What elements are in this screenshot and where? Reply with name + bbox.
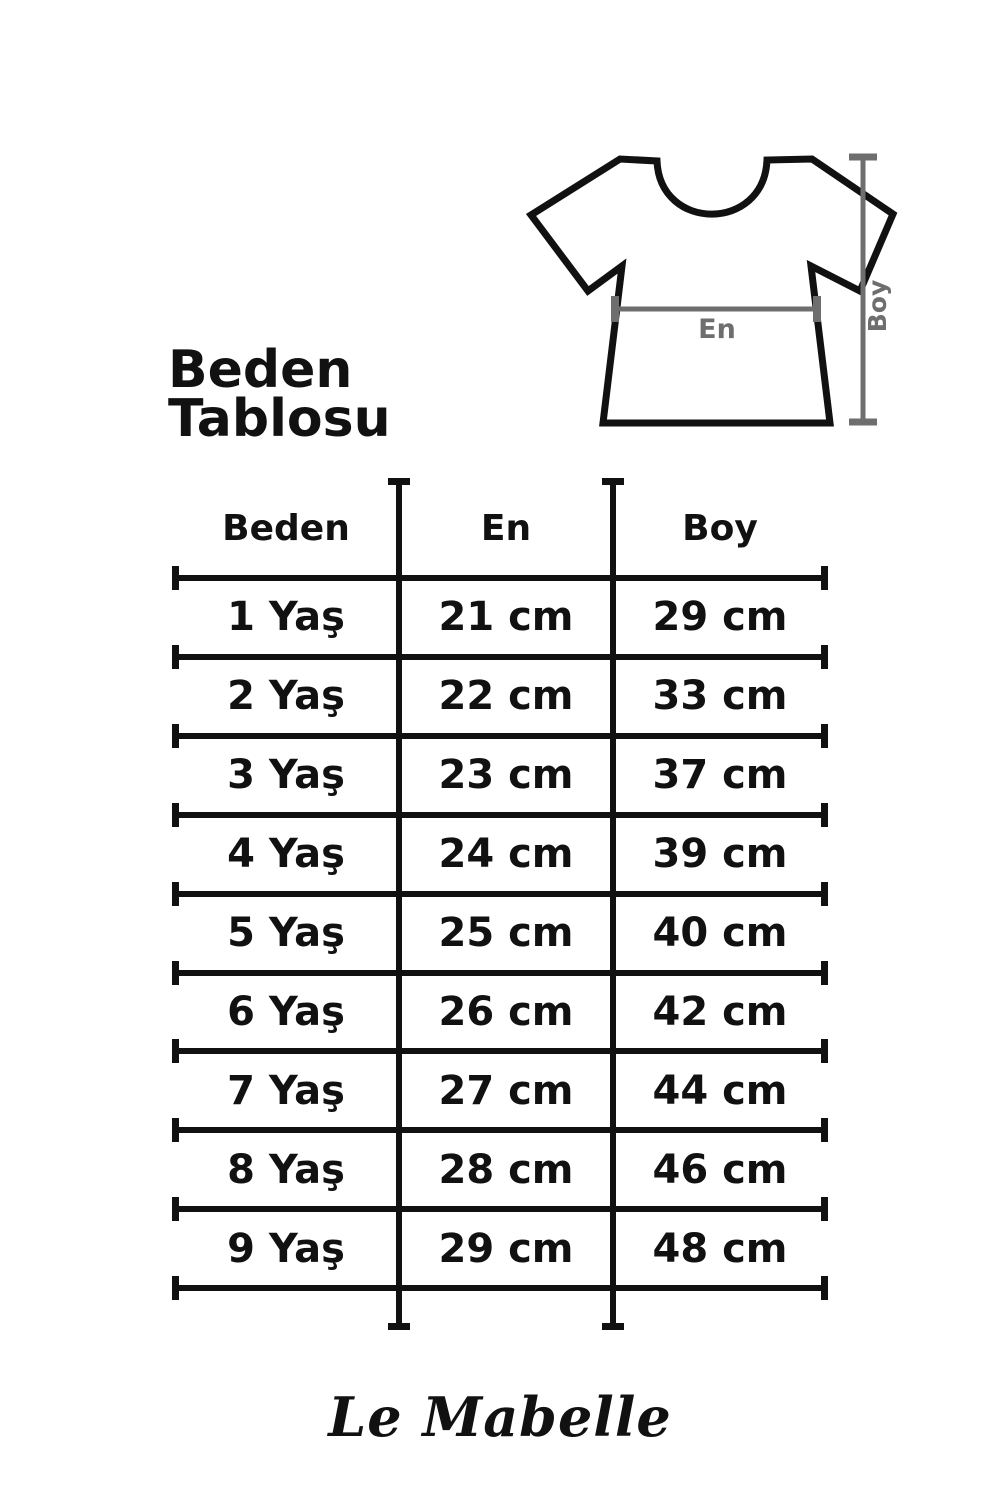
table-horizontal-rule — [173, 1048, 827, 1054]
table-header-beden: Beden — [173, 478, 399, 578]
width-cell: 22 cm — [399, 657, 613, 736]
table-row: 4 Yaş24 cm39 cm — [173, 815, 827, 894]
height-cell: 42 cm — [613, 972, 827, 1051]
table-horizontal-rule — [173, 1285, 827, 1291]
width-measure-label: En — [698, 314, 736, 345]
table-horizontal-rule — [173, 1127, 827, 1133]
table-horizontal-rule — [173, 575, 827, 581]
page-title: Beden Tablosu — [168, 346, 391, 444]
height-cell: 44 cm — [613, 1051, 827, 1130]
table-row: 3 Yaş23 cm37 cm — [173, 736, 827, 815]
height-measure-label: Boy — [863, 280, 892, 333]
size-cell: 4 Yaş — [173, 815, 399, 894]
tshirt-diagram: En Boy — [500, 130, 920, 450]
width-cell: 29 cm — [399, 1209, 613, 1288]
height-cell: 46 cm — [613, 1130, 827, 1209]
height-cell: 40 cm — [613, 894, 827, 973]
table-row: 2 Yaş22 cm33 cm — [173, 657, 827, 736]
size-chart-page: En Boy Beden Tablosu Beden En Boy 1 Yaş2… — [0, 0, 1000, 1500]
height-cell: 37 cm — [613, 736, 827, 815]
width-cell: 27 cm — [399, 1051, 613, 1130]
width-cell: 26 cm — [399, 972, 613, 1051]
size-table: Beden En Boy 1 Yaş21 cm29 cm2 Yaş22 cm33… — [173, 478, 827, 1338]
size-cell: 1 Yaş — [173, 578, 399, 657]
table-horizontal-rule — [173, 733, 827, 739]
table-horizontal-rule — [173, 812, 827, 818]
table-row: 6 Yaş26 cm42 cm — [173, 972, 827, 1051]
height-cell: 33 cm — [613, 657, 827, 736]
size-cell: 5 Yaş — [173, 894, 399, 973]
brand-logo: Le Mabelle — [0, 1385, 1000, 1449]
height-cell: 48 cm — [613, 1209, 827, 1288]
width-cell: 23 cm — [399, 736, 613, 815]
table-horizontal-rule — [173, 1206, 827, 1212]
table-body: 1 Yaş21 cm29 cm2 Yaş22 cm33 cm3 Yaş23 cm… — [173, 578, 827, 1288]
table-header-row: Beden En Boy — [173, 478, 827, 578]
width-cell: 24 cm — [399, 815, 613, 894]
width-cell: 28 cm — [399, 1130, 613, 1209]
size-cell: 9 Yaş — [173, 1209, 399, 1288]
table-horizontal-rule — [173, 654, 827, 660]
table-row: 9 Yaş29 cm48 cm — [173, 1209, 827, 1288]
table-row: 1 Yaş21 cm29 cm — [173, 578, 827, 657]
table-rows: Beden En Boy 1 Yaş21 cm29 cm2 Yaş22 cm33… — [173, 478, 827, 1288]
width-cell: 25 cm — [399, 894, 613, 973]
width-cell: 21 cm — [399, 578, 613, 657]
table-row: 5 Yaş25 cm40 cm — [173, 894, 827, 973]
table-row: 7 Yaş27 cm44 cm — [173, 1051, 827, 1130]
table-row: 8 Yaş28 cm46 cm — [173, 1130, 827, 1209]
table-horizontal-rule — [173, 970, 827, 976]
size-cell: 7 Yaş — [173, 1051, 399, 1130]
page-title-line2: Tablosu — [168, 389, 391, 449]
size-cell: 2 Yaş — [173, 657, 399, 736]
size-cell: 8 Yaş — [173, 1130, 399, 1209]
table-header-en: En — [399, 478, 613, 578]
height-cell: 29 cm — [613, 578, 827, 657]
size-cell: 6 Yaş — [173, 972, 399, 1051]
table-horizontal-rule — [173, 891, 827, 897]
size-cell: 3 Yaş — [173, 736, 399, 815]
table-header-boy: Boy — [613, 478, 827, 578]
tshirt-outline — [531, 159, 893, 423]
height-cell: 39 cm — [613, 815, 827, 894]
